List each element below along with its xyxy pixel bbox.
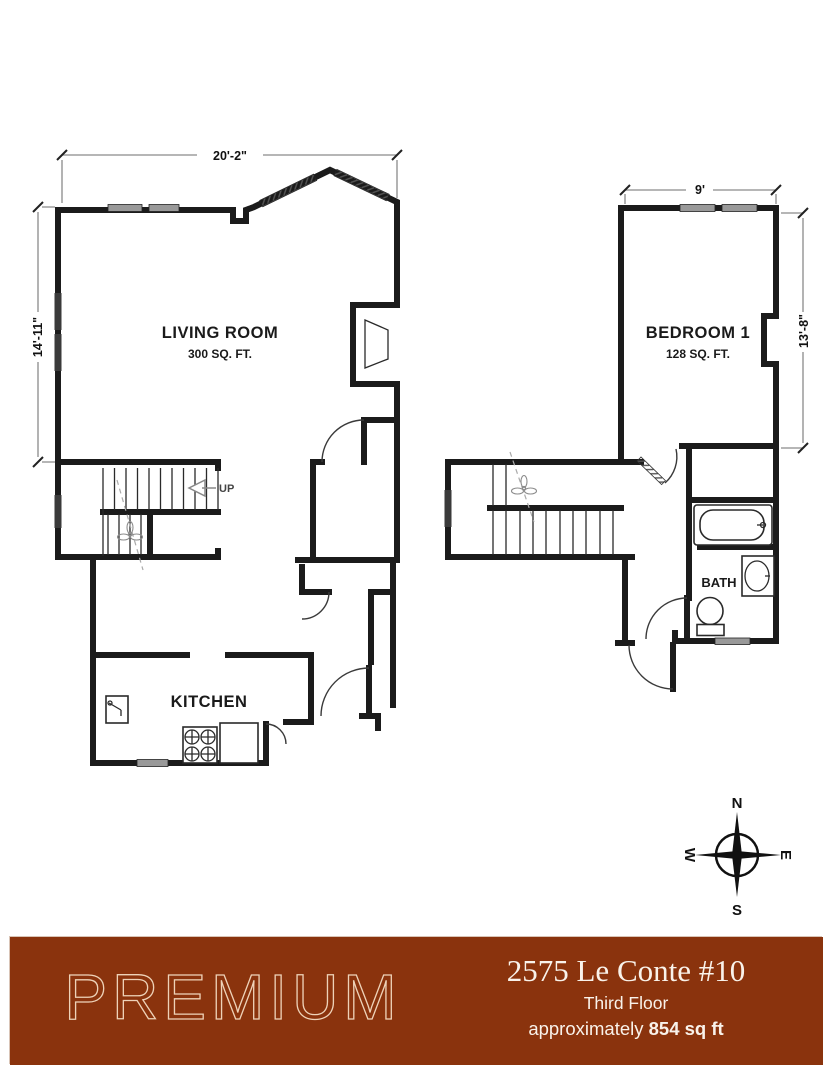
window: [55, 334, 62, 371]
living-room-label: LIVING ROOM: [162, 324, 278, 342]
svg-text:20'-2": 20'-2": [213, 149, 247, 163]
bedroom-area: 128 SQ. FT.: [666, 347, 730, 361]
compass-west: W: [681, 848, 698, 863]
left-unit: UP LIVING ROOM 300 SQ. FT. KITCHEN: [31, 149, 402, 767]
dimension-width: 9': [620, 183, 781, 204]
window: [149, 205, 179, 212]
up-arrow-icon: [189, 480, 216, 496]
window: [722, 205, 757, 212]
area-prefix: approximately: [528, 1018, 648, 1039]
brand-logo: PREMIUM: [38, 949, 428, 1049]
bath-label: BATH: [701, 575, 736, 590]
window: [445, 490, 452, 527]
footer-banner: PREMIUM 2575 Le Conte #10 Third Floor ap…: [10, 937, 823, 1065]
floor-plan-drawing: UP LIVING ROOM 300 SQ. FT. KITCHEN: [0, 0, 835, 930]
address-line: 2575 Le Conte #10: [440, 951, 812, 991]
brand-text: PREMIUM: [64, 961, 401, 1033]
svg-text:9': 9': [695, 183, 705, 197]
svg-text:13'-8": 13'-8": [797, 314, 811, 348]
stove-icon: [183, 727, 217, 763]
kitchen-label: KITCHEN: [171, 693, 248, 711]
floor-line: Third Floor: [440, 991, 812, 1016]
area-value: 854 sq ft: [649, 1018, 724, 1039]
dimension-height: 14'-11": [31, 202, 55, 467]
window: [680, 205, 715, 212]
bay-window: [260, 174, 317, 207]
fan-icon: [512, 476, 537, 495]
counter: [220, 723, 258, 763]
door-swings: [266, 420, 369, 744]
address-block: 2575 Le Conte #10 Third Floor approximat…: [440, 951, 812, 1042]
toilet-icon: [697, 598, 724, 636]
kitchen-sink-icon: [106, 696, 128, 723]
window: [108, 205, 142, 212]
right-unit: BEDROOM 1 128 SQ. FT. BATH 9' 13'-8": [445, 183, 812, 689]
compass-east: E: [777, 850, 794, 860]
compass-south: S: [732, 902, 742, 919]
living-room-area: 300 SQ. FT.: [188, 347, 252, 361]
window: [55, 495, 62, 528]
compass-north: N: [732, 795, 743, 812]
svg-text:14'-11": 14'-11": [31, 317, 45, 357]
window: [715, 638, 750, 645]
floor-plan-page: UP LIVING ROOM 300 SQ. FT. KITCHEN: [0, 0, 835, 1080]
door-leaf: [637, 457, 665, 485]
bedroom-label: BEDROOM 1: [646, 324, 750, 342]
fireplace-icon: [365, 320, 388, 368]
bathroom-sink-icon: [742, 556, 774, 596]
dimension-height: 13'-8": [781, 208, 811, 453]
stairs-up-label: UP: [219, 483, 234, 495]
bathtub-icon: [694, 505, 772, 545]
compass-rose-icon: N S W E: [681, 795, 794, 919]
door-swings: [629, 449, 687, 689]
window: [55, 293, 62, 330]
bay-window: [334, 169, 389, 200]
window: [137, 760, 168, 767]
area-line: approximately 854 sq ft: [440, 1016, 812, 1042]
